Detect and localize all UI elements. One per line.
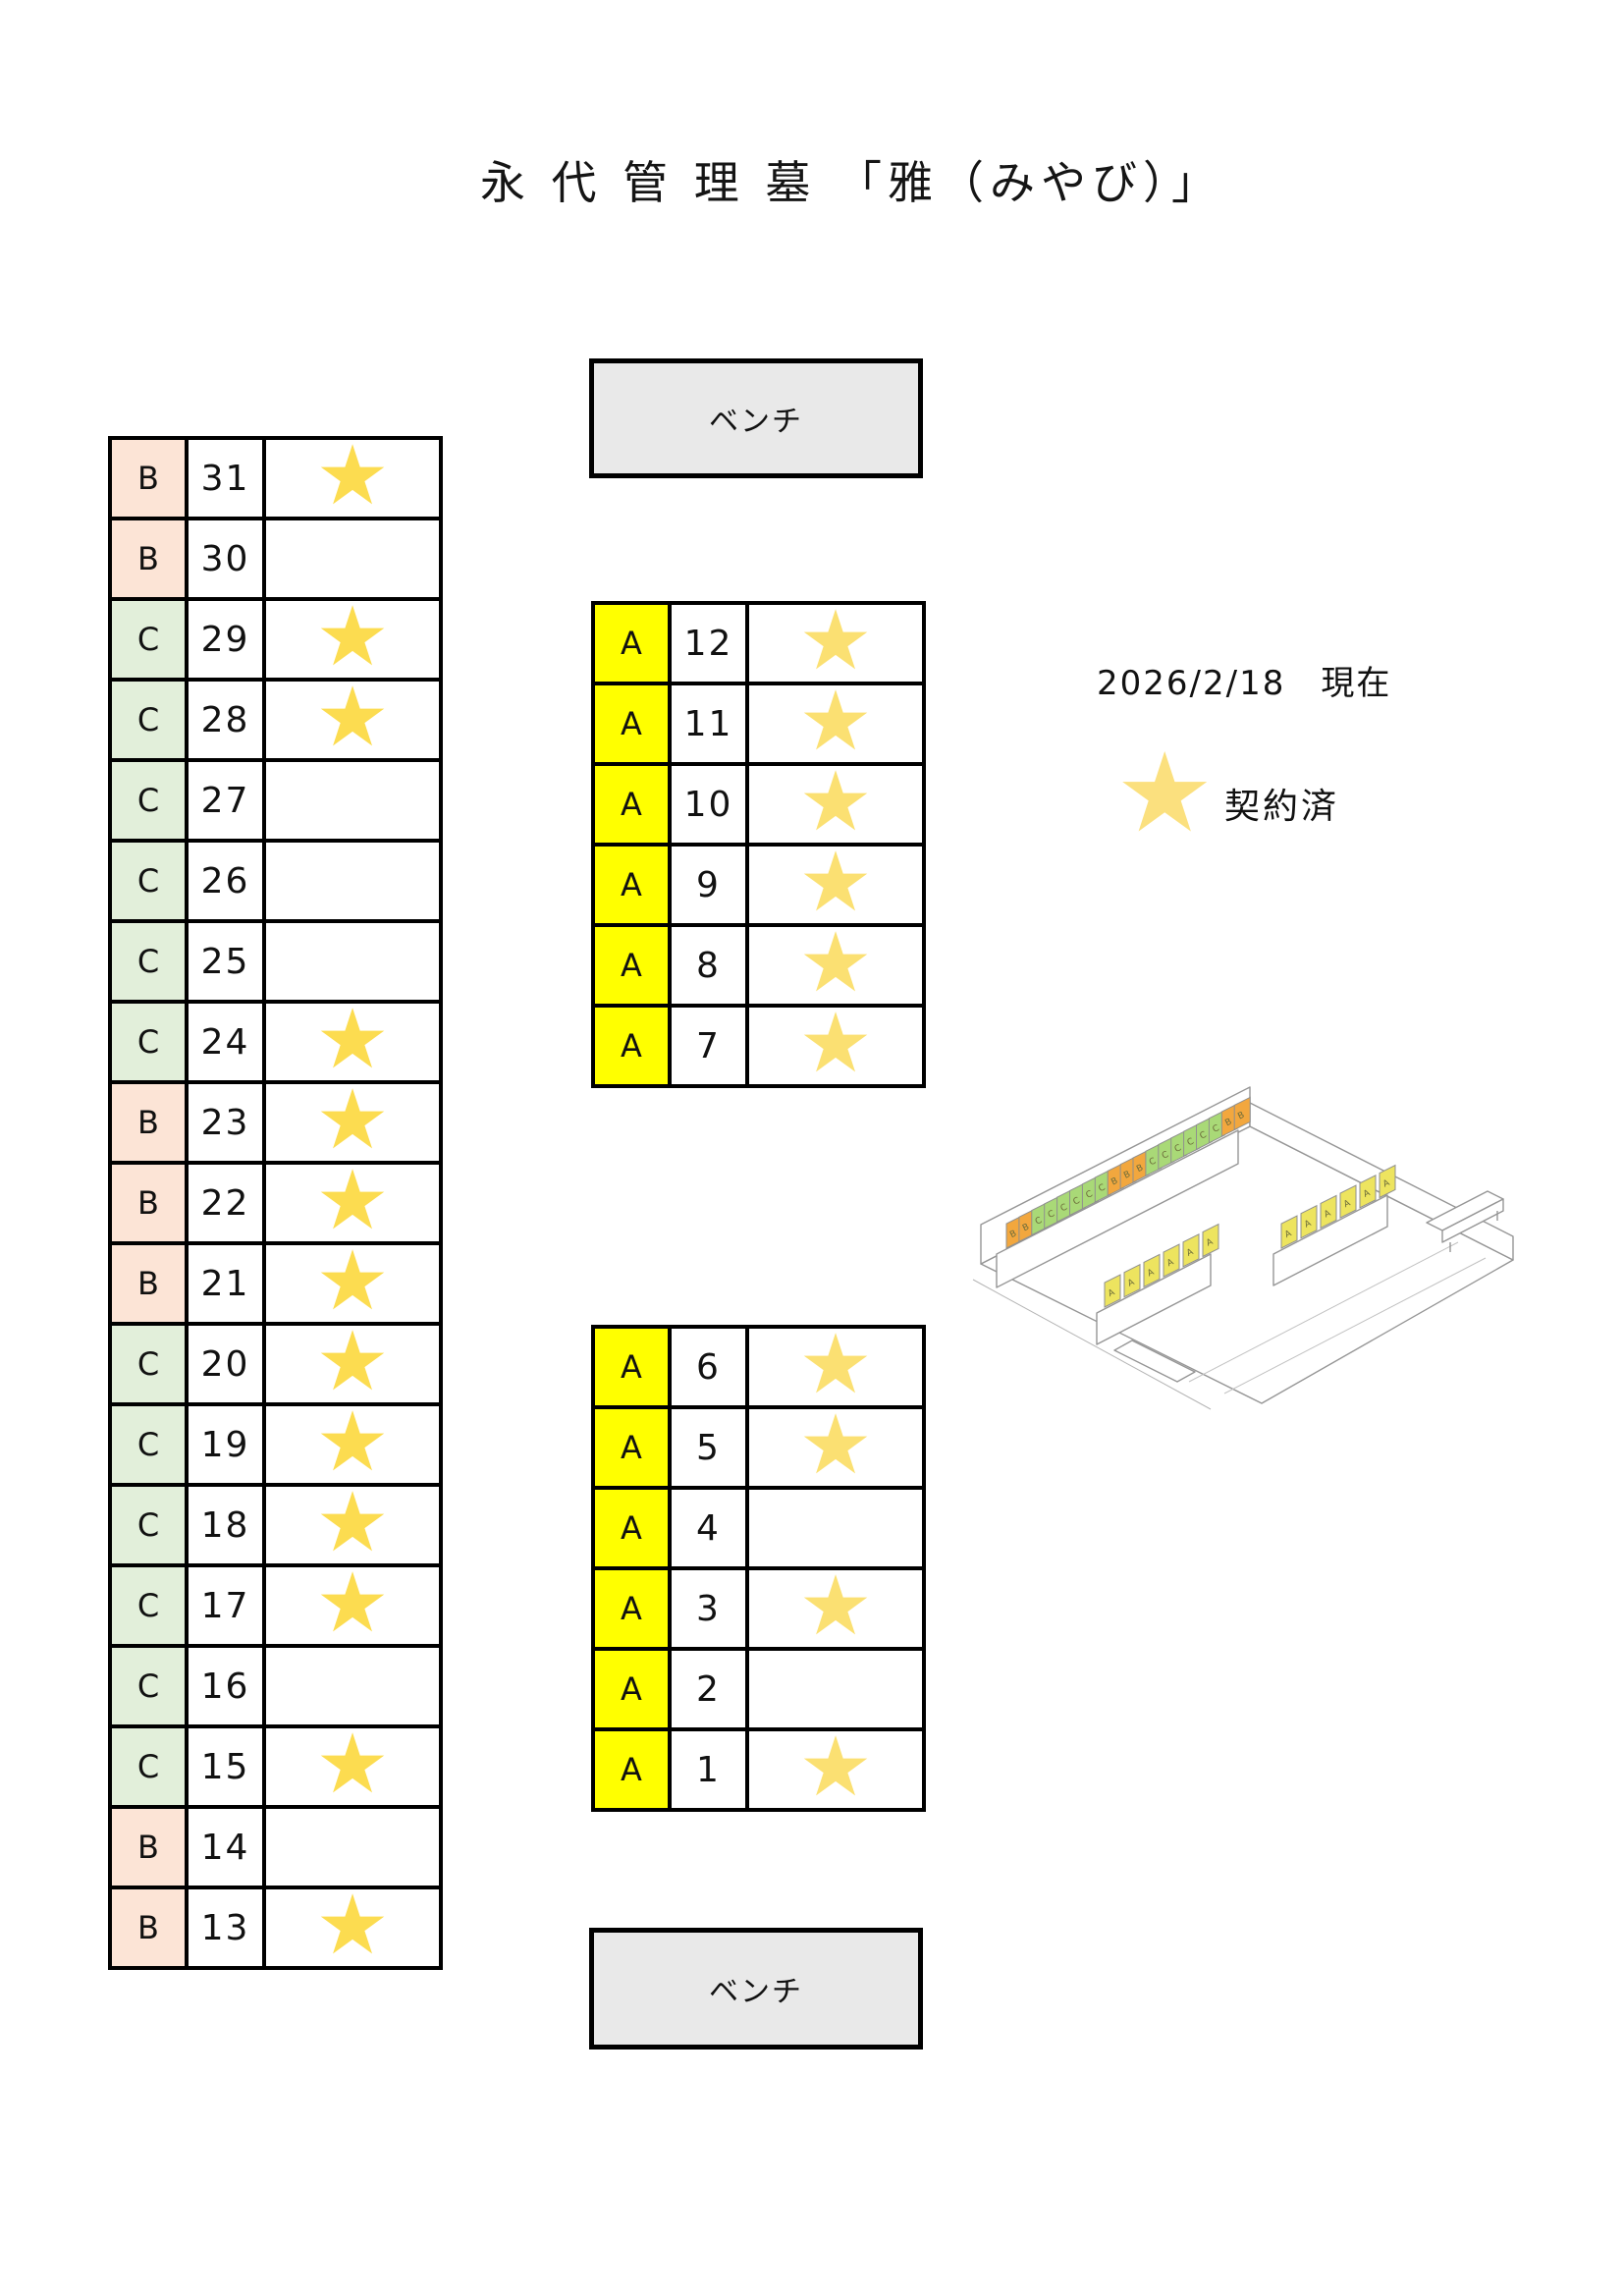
status-cell: ★: [747, 683, 924, 764]
block-cell: B: [110, 438, 187, 519]
block-cell: A: [593, 1649, 670, 1729]
reserved-star-icon: ★: [798, 1568, 872, 1647]
seat-row: A 11 ★: [593, 683, 924, 764]
as-of-date: 2026/2/18 現在: [1097, 656, 1391, 704]
block-cell: A: [593, 764, 670, 845]
seat-row: B 30: [110, 519, 441, 599]
number-cell: 2: [670, 1649, 747, 1729]
reserved-star-icon: ★: [315, 1404, 389, 1483]
reserved-star-icon: ★: [315, 1565, 389, 1644]
status-cell: ★: [747, 764, 924, 845]
number-cell: 10: [670, 764, 747, 845]
status-cell: ★: [747, 1327, 924, 1407]
number-cell: 16: [187, 1646, 264, 1726]
legend-label: 契約済: [1224, 778, 1339, 829]
reserved-star-icon: ★: [798, 1006, 872, 1084]
seat-row: A 2: [593, 1649, 924, 1729]
status-cell: ★: [747, 1006, 924, 1086]
number-cell: 26: [187, 841, 264, 921]
number-cell: 21: [187, 1243, 264, 1324]
number-cell: 19: [187, 1404, 264, 1485]
status-cell: [264, 1807, 441, 1887]
reserved-star-icon: ★: [798, 764, 872, 843]
seat-row: C 25: [110, 921, 441, 1002]
block-cell: A: [593, 1488, 670, 1568]
seat-row: B 22 ★: [110, 1163, 441, 1243]
reserved-star-icon: ★: [315, 1485, 389, 1563]
status-cell: ★: [264, 1404, 441, 1485]
status-cell: ★: [747, 845, 924, 925]
block-cell: C: [110, 1485, 187, 1565]
number-cell: 11: [670, 683, 747, 764]
status-cell: [264, 760, 441, 841]
seat-row: C 27: [110, 760, 441, 841]
status-cell: ★: [747, 603, 924, 683]
status-cell: [264, 519, 441, 599]
block-cell: C: [110, 599, 187, 680]
seat-row: A 7 ★: [593, 1006, 924, 1086]
block-cell: C: [110, 1324, 187, 1404]
seat-row: C 24 ★: [110, 1002, 441, 1082]
status-cell: ★: [747, 925, 924, 1006]
legend-star-icon: ★: [1115, 738, 1214, 848]
reserved-star-icon: ★: [798, 603, 872, 682]
reserved-star-icon: ★: [315, 1243, 389, 1322]
seat-row: B 31 ★: [110, 438, 441, 519]
status-cell: ★: [747, 1407, 924, 1488]
block-cell: A: [593, 1729, 670, 1810]
status-cell: ★: [264, 680, 441, 760]
seat-row: C 18 ★: [110, 1485, 441, 1565]
block-cell: B: [110, 1163, 187, 1243]
block-cell: A: [593, 603, 670, 683]
status-cell: ★: [264, 1163, 441, 1243]
reserved-star-icon: ★: [315, 1163, 389, 1241]
number-cell: 20: [187, 1324, 264, 1404]
bench-top-label: ベンチ: [709, 397, 803, 440]
number-cell: 28: [187, 680, 264, 760]
reserved-star-icon: ★: [798, 1327, 872, 1405]
status-cell: [264, 921, 441, 1002]
status-cell: ★: [264, 438, 441, 519]
reserved-star-icon: ★: [798, 925, 872, 1004]
middle-bottom-seat-table: A 6 ★ A 5 ★ A 4 A 3 ★ A 2 A 1: [591, 1325, 926, 1812]
number-cell: 29: [187, 599, 264, 680]
reserved-star-icon: ★: [798, 1729, 872, 1808]
seat-row: A 9 ★: [593, 845, 924, 925]
block-cell: A: [593, 1327, 670, 1407]
block-cell: A: [593, 1407, 670, 1488]
block-cell: C: [110, 1646, 187, 1726]
seat-row: A 6 ★: [593, 1327, 924, 1407]
reserved-star-icon: ★: [798, 683, 872, 762]
number-cell: 23: [187, 1082, 264, 1163]
status-cell: [264, 1646, 441, 1726]
status-cell: ★: [747, 1568, 924, 1649]
block-cell: C: [110, 1726, 187, 1807]
number-cell: 12: [670, 603, 747, 683]
reserved-star-icon: ★: [315, 1887, 389, 1966]
seat-row: A 8 ★: [593, 925, 924, 1006]
number-cell: 7: [670, 1006, 747, 1086]
seat-row: C 20 ★: [110, 1324, 441, 1404]
seat-row: A 1 ★: [593, 1729, 924, 1810]
block-cell: C: [110, 680, 187, 760]
bench-bottom-label: ベンチ: [709, 1967, 803, 2010]
middle-top-seat-table: A 12 ★ A 11 ★ A 10 ★ A 9 ★ A 8 ★ A 7: [591, 601, 926, 1088]
reserved-star-icon: ★: [798, 1407, 872, 1486]
status-cell: ★: [264, 1324, 441, 1404]
status-cell: ★: [264, 1082, 441, 1163]
block-cell: B: [110, 519, 187, 599]
reserved-star-icon: ★: [315, 1726, 389, 1805]
number-cell: 9: [670, 845, 747, 925]
number-cell: 22: [187, 1163, 264, 1243]
seat-row: B 21 ★: [110, 1243, 441, 1324]
status-cell: ★: [264, 1565, 441, 1646]
block-cell: C: [110, 841, 187, 921]
number-cell: 31: [187, 438, 264, 519]
number-cell: 5: [670, 1407, 747, 1488]
seat-row: C 16: [110, 1646, 441, 1726]
block-cell: C: [110, 1404, 187, 1485]
block-cell: B: [110, 1807, 187, 1887]
status-cell: ★: [264, 599, 441, 680]
seat-row: B 13 ★: [110, 1887, 441, 1968]
block-cell: A: [593, 683, 670, 764]
number-cell: 30: [187, 519, 264, 599]
reserved-star-icon: ★: [315, 680, 389, 758]
seat-row: B 23 ★: [110, 1082, 441, 1163]
block-cell: B: [110, 1082, 187, 1163]
block-cell: A: [593, 1006, 670, 1086]
reserved-star-icon: ★: [315, 1324, 389, 1402]
seat-row: C 28 ★: [110, 680, 441, 760]
number-cell: 8: [670, 925, 747, 1006]
seat-row: A 12 ★: [593, 603, 924, 683]
block-cell: B: [110, 1243, 187, 1324]
seat-row: A 5 ★: [593, 1407, 924, 1488]
site-illustration: BBCCCCCCBBBCCCCCCBBAAAAAAAAAAAA: [967, 987, 1537, 1419]
status-cell: [747, 1649, 924, 1729]
number-cell: 24: [187, 1002, 264, 1082]
number-cell: 4: [670, 1488, 747, 1568]
reserved-star-icon: ★: [315, 1002, 389, 1080]
seat-row: A 10 ★: [593, 764, 924, 845]
status-cell: ★: [264, 1243, 441, 1324]
seat-row: C 17 ★: [110, 1565, 441, 1646]
reserved-star-icon: ★: [798, 845, 872, 923]
seat-row: C 26: [110, 841, 441, 921]
block-cell: A: [593, 845, 670, 925]
block-cell: C: [110, 921, 187, 1002]
seat-row: A 4: [593, 1488, 924, 1568]
number-cell: 3: [670, 1568, 747, 1649]
status-cell: ★: [264, 1887, 441, 1968]
status-cell: [747, 1488, 924, 1568]
seat-row: B 14: [110, 1807, 441, 1887]
number-cell: 27: [187, 760, 264, 841]
block-cell: A: [593, 925, 670, 1006]
reserved-star-icon: ★: [315, 1082, 389, 1161]
number-cell: 13: [187, 1887, 264, 1968]
number-cell: 14: [187, 1807, 264, 1887]
block-cell: C: [110, 1002, 187, 1082]
bench-bottom: ベンチ: [589, 1928, 923, 2050]
block-cell: C: [110, 760, 187, 841]
page: 永 代 管 理 墓 「雅（みやび）」 ベンチ B 31 ★ B 30 C 29 …: [0, 0, 1624, 2296]
number-cell: 1: [670, 1729, 747, 1810]
iso-platform: [981, 1126, 1513, 1403]
bench-top: ベンチ: [589, 358, 923, 478]
status-cell: ★: [264, 1726, 441, 1807]
page-title: 永 代 管 理 墓 「雅（みやび）」: [79, 147, 1624, 212]
block-cell: B: [110, 1887, 187, 1968]
number-cell: 6: [670, 1327, 747, 1407]
reserved-star-icon: ★: [315, 438, 389, 517]
status-cell: ★: [264, 1485, 441, 1565]
seat-row: C 19 ★: [110, 1404, 441, 1485]
reserved-star-icon: ★: [315, 599, 389, 678]
number-cell: 25: [187, 921, 264, 1002]
block-cell: A: [593, 1568, 670, 1649]
left-seat-table: B 31 ★ B 30 C 29 ★ C 28 ★ C 27 C 26: [108, 436, 443, 1970]
number-cell: 17: [187, 1565, 264, 1646]
block-cell: C: [110, 1565, 187, 1646]
status-cell: [264, 841, 441, 921]
seat-row: A 3 ★: [593, 1568, 924, 1649]
status-cell: ★: [264, 1002, 441, 1082]
number-cell: 15: [187, 1726, 264, 1807]
seat-row: C 29 ★: [110, 599, 441, 680]
seat-row: C 15 ★: [110, 1726, 441, 1807]
status-cell: ★: [747, 1729, 924, 1810]
number-cell: 18: [187, 1485, 264, 1565]
